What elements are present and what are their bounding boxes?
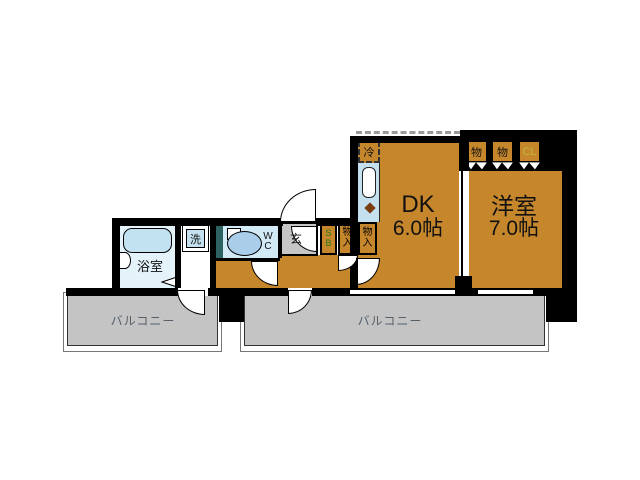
- dk-label: DK 6.0帖: [376, 188, 460, 244]
- fridge-space: 冷: [358, 141, 380, 163]
- closet-1: 物: [466, 141, 487, 162]
- dk-top-wall: [350, 136, 462, 143]
- bathtub: [123, 228, 172, 253]
- balcony-left-label: バルコニー: [93, 312, 193, 328]
- toilet-bowl: [227, 231, 262, 256]
- closet-3: CL: [519, 141, 540, 162]
- washer-hall-wall: [210, 218, 216, 296]
- pipe-duct: [216, 226, 223, 258]
- dk-left-wall: [350, 136, 358, 258]
- bathrow-top-wall-left: [112, 218, 283, 226]
- bifold-door-icon: [492, 162, 513, 171]
- entrance-label: 玄: [282, 227, 310, 249]
- storage-2: 物 入: [358, 222, 377, 255]
- bath-washer-wall: [175, 218, 181, 296]
- closet-2: 物: [492, 141, 513, 162]
- pillar-southeast: [546, 288, 577, 322]
- kitchen-sink: [362, 167, 376, 198]
- bifold-door-icon: [519, 162, 540, 171]
- upper-floor-dash-line: [356, 131, 460, 134]
- bifold-door-icon: [466, 162, 487, 171]
- floor-plan: 洗 W C S B 物 入 物 入 冷 物 物 CL: [0, 0, 640, 480]
- entrance-door-arc: [280, 189, 316, 222]
- balcony-right-label: バルコニー: [335, 312, 445, 328]
- dk-balcony-window: [350, 289, 455, 295]
- washer-label: 洗: [190, 231, 201, 247]
- partition-bottom-stub: [455, 276, 472, 288]
- bath-label: 浴室: [126, 256, 174, 274]
- bathrow-top-wall-right: [316, 218, 350, 226]
- shoebox: S B: [320, 222, 337, 255]
- western-balcony-window: [478, 289, 533, 295]
- western-room-label: 洋室 7.0帖: [466, 188, 562, 246]
- wc-label: W C: [260, 228, 276, 256]
- bath-left-wall: [112, 218, 120, 296]
- washer-machine: 洗: [186, 229, 205, 248]
- pillar-between-balconies: [219, 288, 244, 322]
